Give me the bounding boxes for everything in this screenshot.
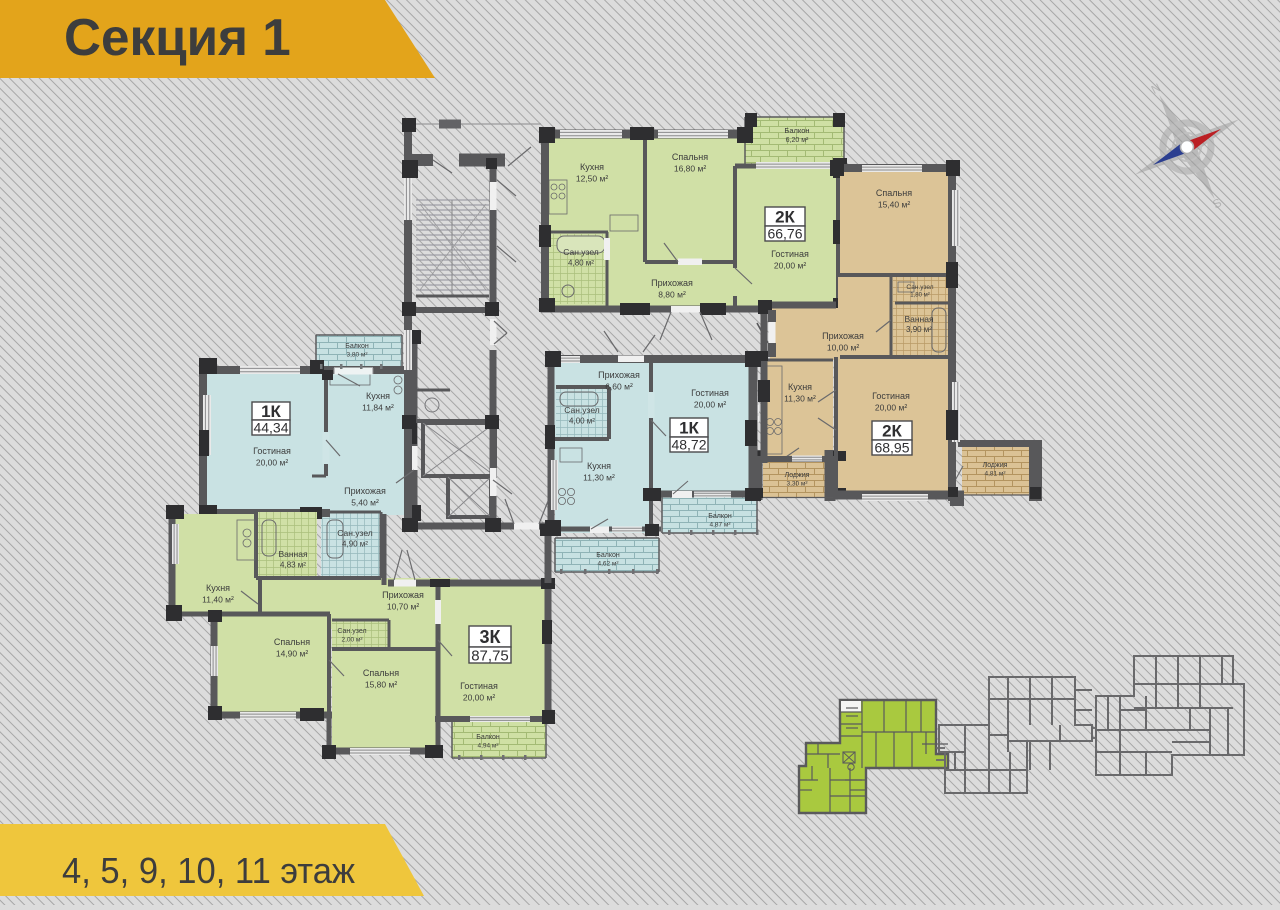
svg-text:Гостиная: Гостиная (691, 388, 729, 398)
svg-text:3К: 3К (480, 627, 502, 647)
svg-text:44,34: 44,34 (253, 420, 288, 436)
svg-text:4,80 м²: 4,80 м² (568, 259, 594, 268)
svg-text:1,80 м²: 1,80 м² (910, 293, 929, 299)
svg-text:Спальня: Спальня (363, 668, 399, 678)
svg-text:20,00 м²: 20,00 м² (694, 400, 726, 410)
svg-text:4,87 м²: 4,87 м² (709, 522, 731, 529)
svg-text:15,40 м²: 15,40 м² (878, 200, 910, 210)
svg-text:Кухня: Кухня (788, 382, 812, 392)
svg-text:11,84 м²: 11,84 м² (362, 403, 394, 413)
svg-text:Спальня: Спальня (876, 188, 912, 198)
svg-text:Прихожая: Прихожая (651, 278, 693, 288)
svg-text:6,60 м²: 6,60 м² (605, 382, 633, 392)
svg-text:Спальня: Спальня (672, 152, 708, 162)
svg-text:Лоджия: Лоджия (785, 472, 810, 479)
svg-text:Балкон: Балкон (596, 552, 620, 559)
svg-text:12,50 м²: 12,50 м² (576, 174, 608, 184)
svg-text:Балкон: Балкон (476, 734, 500, 741)
svg-text:Лоджия: Лоджия (983, 462, 1008, 469)
svg-text:14,90 м²: 14,90 м² (276, 649, 308, 659)
svg-text:2,00 м²: 2,00 м² (341, 637, 363, 644)
svg-text:4,94 м²: 4,94 м² (477, 743, 499, 750)
svg-text:Гостиная: Гостиная (460, 681, 498, 691)
svg-text:Сан.узел: Сан.узел (337, 528, 373, 538)
svg-text:4,62 м²: 4,62 м² (597, 561, 619, 568)
svg-text:20,00 м²: 20,00 м² (875, 403, 907, 413)
svg-text:48,72: 48,72 (671, 437, 706, 453)
svg-text:10,70 м²: 10,70 м² (387, 602, 419, 612)
svg-text:Кухня: Кухня (366, 391, 390, 401)
svg-text:3,30 м²: 3,30 м² (786, 481, 808, 488)
svg-text:1К: 1К (261, 402, 281, 421)
svg-text:20,00 м²: 20,00 м² (774, 261, 806, 271)
svg-text:2К: 2К (775, 208, 795, 227)
svg-text:66,76: 66,76 (767, 226, 802, 242)
svg-text:5,40 м²: 5,40 м² (351, 498, 379, 508)
svg-text:4,81 м²: 4,81 м² (984, 471, 1006, 478)
svg-text:Ванная: Ванная (904, 314, 934, 324)
svg-text:Гостиная: Гостиная (872, 391, 910, 401)
svg-text:Кухня: Кухня (580, 162, 604, 172)
svg-text:Балкон: Балкон (784, 126, 809, 135)
svg-text:Сан.узел: Сан.узел (563, 247, 599, 257)
svg-text:11,30 м²: 11,30 м² (784, 394, 816, 404)
svg-text:4,90 м²: 4,90 м² (342, 540, 368, 549)
svg-text:Сан.узел: Сан.узел (564, 405, 600, 415)
svg-text:Прихожая: Прихожая (598, 370, 640, 380)
svg-text:68,95: 68,95 (874, 440, 909, 456)
svg-text:Гостиная: Гостиная (771, 249, 809, 259)
svg-text:Прихожая: Прихожая (382, 590, 424, 600)
svg-text:6,20 м²: 6,20 м² (786, 137, 809, 144)
svg-text:Кухня: Кухня (206, 583, 230, 593)
svg-text:11,40 м²: 11,40 м² (202, 595, 234, 605)
svg-text:Кухня: Кухня (587, 461, 611, 471)
svg-text:Ванная: Ванная (278, 549, 308, 559)
svg-text:8,80 м²: 8,80 м² (658, 290, 686, 300)
svg-text:10,00 м²: 10,00 м² (827, 343, 859, 353)
svg-text:15,80 м²: 15,80 м² (365, 680, 397, 690)
svg-text:Сан.узел: Сан.узел (337, 628, 366, 635)
svg-text:3,80 м²: 3,80 м² (346, 352, 368, 359)
svg-text:Сан.узел: Сан.узел (906, 284, 933, 291)
svg-text:20,00 м²: 20,00 м² (463, 693, 495, 703)
svg-text:Балкон: Балкон (345, 343, 369, 350)
svg-text:2К: 2К (882, 422, 902, 441)
svg-text:Балкон: Балкон (708, 513, 732, 520)
svg-text:16,80 м²: 16,80 м² (674, 164, 706, 174)
svg-text:20,00 м²: 20,00 м² (256, 458, 288, 468)
svg-text:4,00 м²: 4,00 м² (569, 417, 595, 426)
svg-text:Прихожая: Прихожая (344, 486, 386, 496)
svg-text:Гостиная: Гостиная (253, 446, 291, 456)
svg-text:Спальня: Спальня (274, 637, 310, 647)
svg-text:11,30 м²: 11,30 м² (583, 473, 615, 483)
svg-text:Прихожая: Прихожая (822, 331, 864, 341)
svg-text:1К: 1К (679, 419, 699, 438)
svg-text:3,90 м²: 3,90 м² (906, 325, 932, 334)
svg-text:4,83 м²: 4,83 м² (280, 561, 306, 570)
svg-text:87,75: 87,75 (471, 647, 509, 664)
